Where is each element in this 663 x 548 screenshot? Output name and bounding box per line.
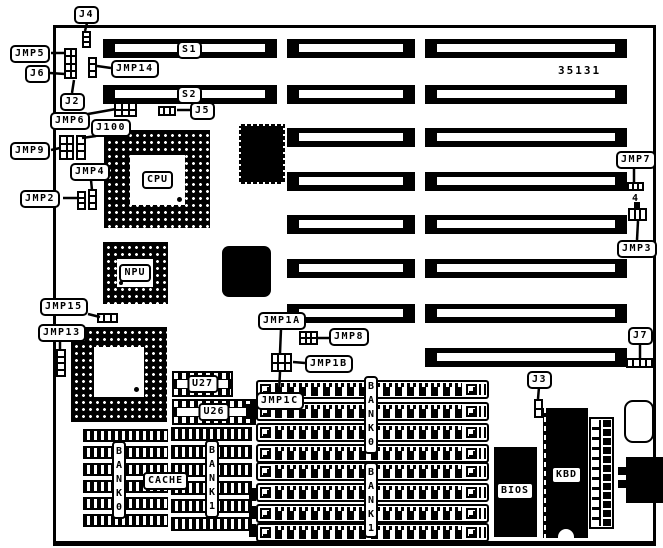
callout-jmp7: JMP7 xyxy=(616,151,656,169)
callout-jmp1c: JMP1C xyxy=(256,392,304,410)
callout-jmp5: JMP5 xyxy=(10,45,50,63)
callout-jmp8: JMP8 xyxy=(329,328,369,346)
motherboard-diagram: 35131 S1 S2 CPU NPU xyxy=(0,0,663,548)
callout-jmp6: JMP6 xyxy=(50,112,90,130)
callout-j6: J6 xyxy=(25,65,50,83)
callout-j100: J100 xyxy=(91,119,131,137)
cache-bank1-label: BANK1 xyxy=(205,440,219,518)
callout-jmp1a: JMP1A xyxy=(258,312,306,330)
callout-j4: J4 xyxy=(74,6,99,24)
callout-jmp14: JMP14 xyxy=(111,60,159,78)
callout-j5: J5 xyxy=(190,102,215,120)
callout-jmp4: JMP4 xyxy=(70,163,110,181)
callout-jmp1b: JMP1B xyxy=(305,355,353,373)
callout-j3: J3 xyxy=(527,371,552,389)
bios-label: BIOS xyxy=(496,482,534,500)
cache-bank0-label: BANK0 xyxy=(112,441,126,519)
cache-label: CACHE xyxy=(143,472,188,490)
callout-jmp2: JMP2 xyxy=(20,190,60,208)
simm-bank0-label: BANK0 xyxy=(364,376,378,454)
simm-bank1-label: BANK1 xyxy=(364,462,378,538)
callout-jmp13: JMP13 xyxy=(38,324,86,342)
callout-j7: J7 xyxy=(628,327,653,345)
kbd-label: KBD xyxy=(551,466,582,484)
slot-label-s1: S1 xyxy=(177,41,202,59)
callout-jmp9: JMP9 xyxy=(10,142,50,160)
callout-j2: J2 xyxy=(60,93,85,111)
callout-jmp15: JMP15 xyxy=(40,298,88,316)
callout-jmp3: JMP3 xyxy=(617,240,657,258)
